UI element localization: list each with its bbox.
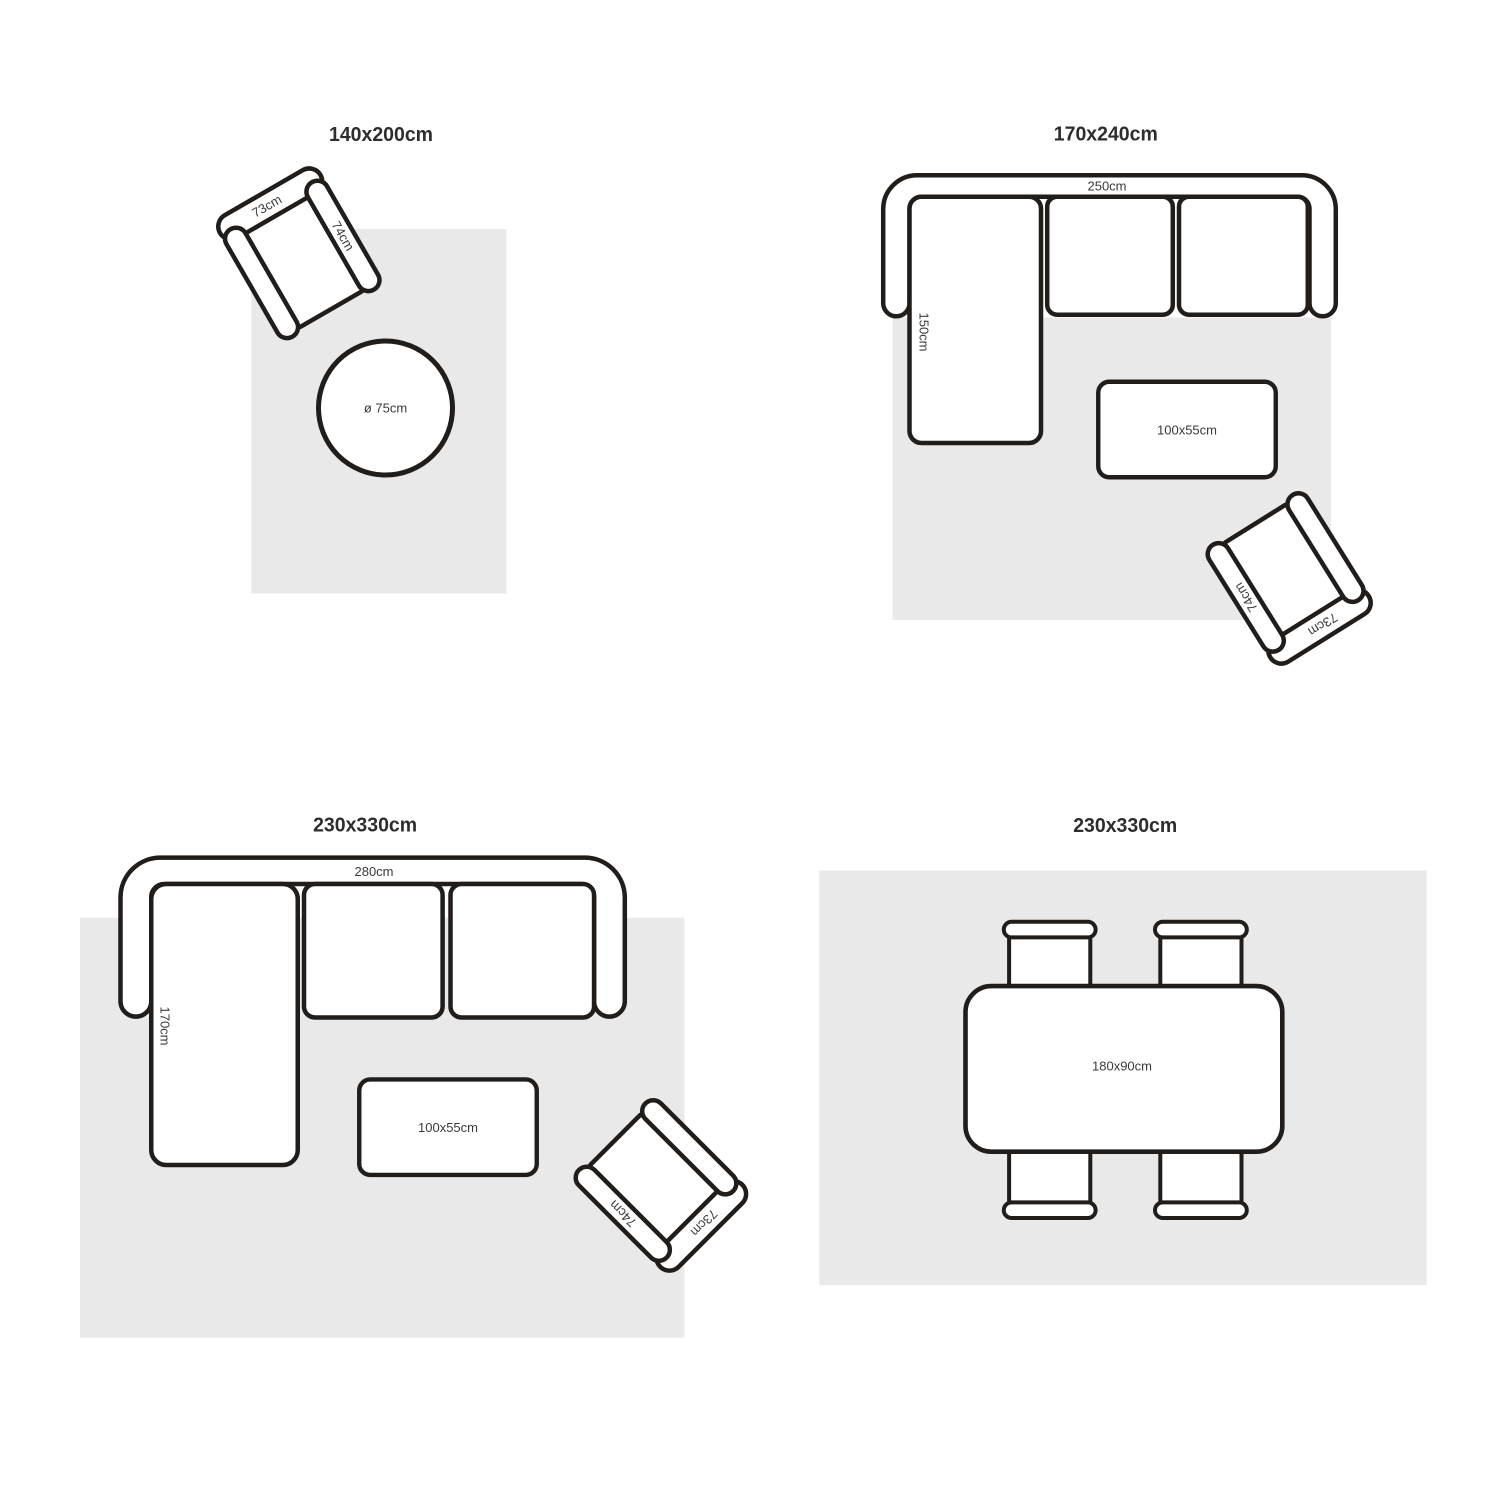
svg-text:230x330cm: 230x330cm xyxy=(313,815,417,837)
svg-text:230x330cm: 230x330cm xyxy=(1073,815,1177,837)
svg-text:280cm: 280cm xyxy=(354,864,393,879)
svg-text:100x55cm: 100x55cm xyxy=(418,1120,478,1135)
svg-text:170x240cm: 170x240cm xyxy=(1054,124,1158,146)
svg-text:170cm: 170cm xyxy=(158,1006,173,1045)
svg-text:250cm: 250cm xyxy=(1087,179,1126,194)
svg-text:100x55cm: 100x55cm xyxy=(1157,422,1217,437)
svg-text:180x90cm: 180x90cm xyxy=(1092,1059,1152,1074)
svg-text:ø 75cm: ø 75cm xyxy=(364,401,407,416)
svg-text:140x200cm: 140x200cm xyxy=(329,124,433,146)
svg-text:150cm: 150cm xyxy=(917,312,932,351)
